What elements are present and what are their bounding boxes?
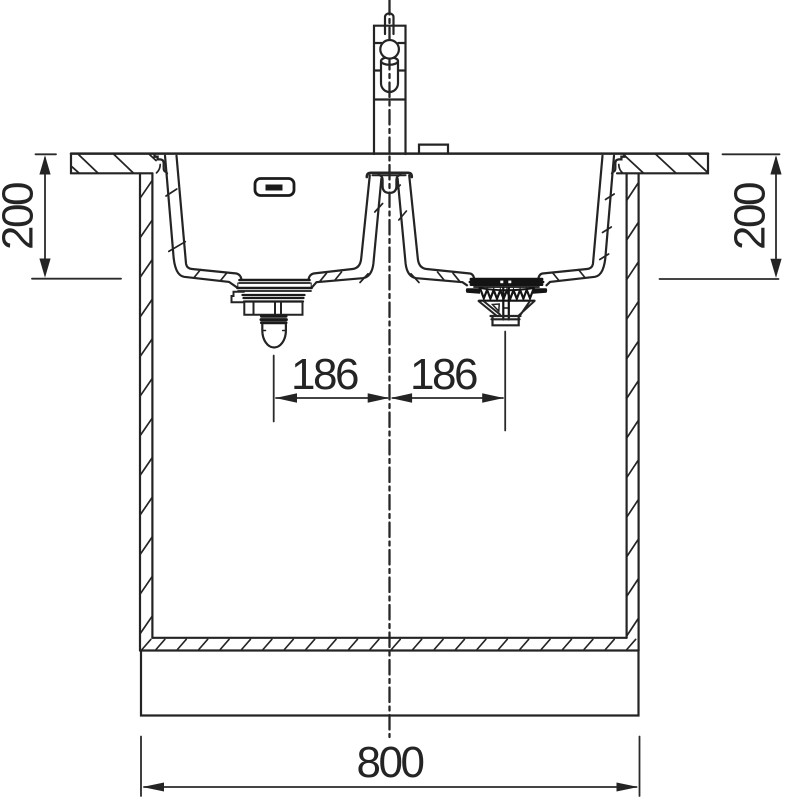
svg-text:186: 186	[291, 350, 358, 399]
svg-text:800: 800	[357, 738, 424, 787]
svg-text:200: 200	[0, 183, 43, 250]
svg-text:200: 200	[726, 183, 775, 250]
svg-text:186: 186	[410, 350, 477, 399]
